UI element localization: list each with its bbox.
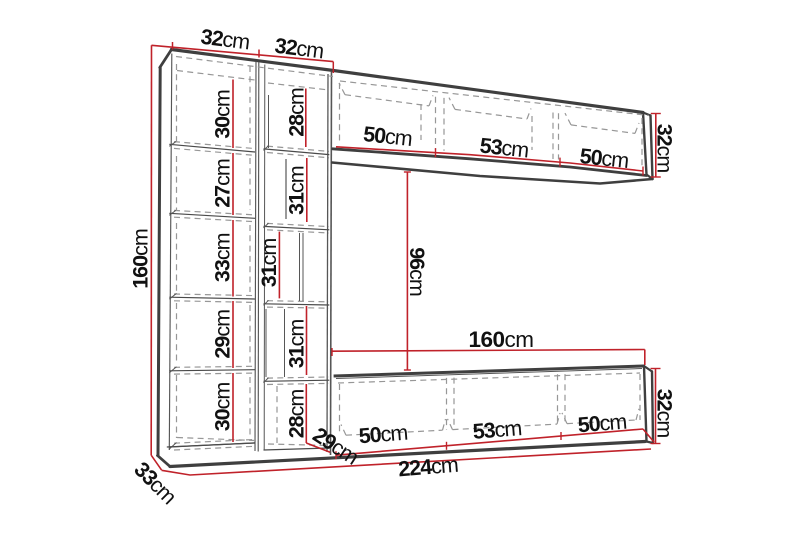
svg-text:53cm: 53cm <box>472 416 522 444</box>
svg-text:53cm: 53cm <box>479 134 530 163</box>
svg-text:29cm: 29cm <box>210 310 234 359</box>
svg-text:32cm: 32cm <box>653 124 677 173</box>
svg-text:160cm: 160cm <box>468 327 533 352</box>
svg-text:50cm: 50cm <box>358 421 408 449</box>
svg-text:30cm: 30cm <box>210 90 234 139</box>
svg-text:28cm: 28cm <box>285 88 309 137</box>
svg-text:50cm: 50cm <box>579 144 630 173</box>
svg-text:96cm: 96cm <box>405 247 429 296</box>
svg-text:50cm: 50cm <box>577 410 627 438</box>
svg-text:33cm: 33cm <box>210 233 234 282</box>
svg-text:28cm: 28cm <box>285 390 309 439</box>
svg-text:224cm: 224cm <box>397 453 458 482</box>
svg-text:31cm: 31cm <box>285 166 309 215</box>
svg-text:31cm: 31cm <box>257 239 281 288</box>
svg-text:50cm: 50cm <box>362 122 413 151</box>
svg-text:30cm: 30cm <box>210 383 234 432</box>
svg-text:160cm: 160cm <box>129 229 153 289</box>
svg-text:27cm: 27cm <box>210 159 234 208</box>
svg-text:32cm: 32cm <box>653 389 677 438</box>
svg-text:31cm: 31cm <box>285 320 309 369</box>
